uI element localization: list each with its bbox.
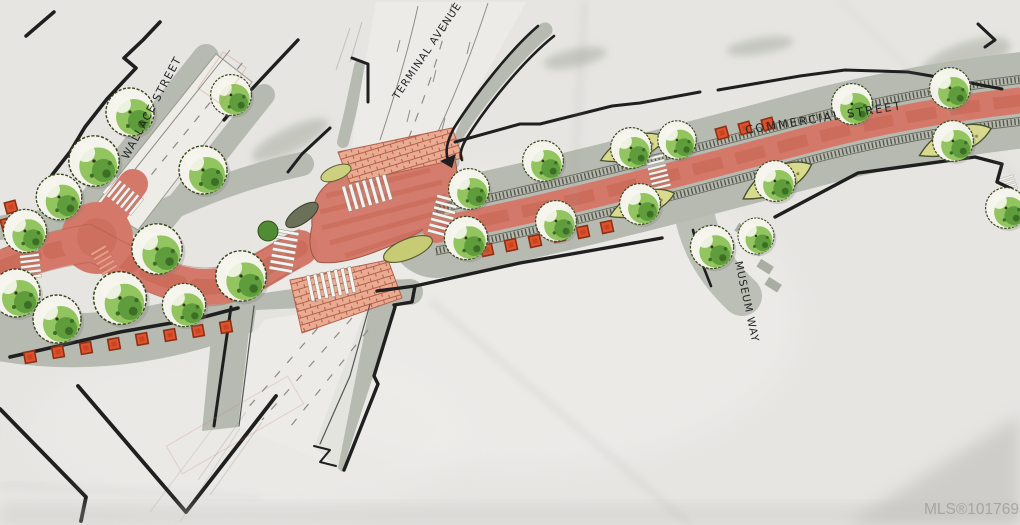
bench-icon <box>220 321 233 334</box>
bench-icon <box>52 346 65 359</box>
plan-photo: WALLACE STREET TERMINAL AVENUE COMMERCIA… <box>0 0 1020 525</box>
bench-icon <box>136 333 149 346</box>
bench-icon <box>80 342 93 355</box>
bench-icon <box>715 126 729 140</box>
bench-icon <box>528 234 541 247</box>
bench-icon <box>164 329 177 342</box>
shrub-icon <box>258 221 278 241</box>
mls-watermark: MLS®1017695 <box>924 501 1020 518</box>
bench-icon <box>108 338 121 351</box>
bench-icon <box>504 238 517 251</box>
streetscape-plan-svg: WALLACE STREET TERMINAL AVENUE COMMERCIA… <box>0 0 1020 525</box>
bench-icon <box>24 351 37 364</box>
bench-icon <box>600 220 613 233</box>
